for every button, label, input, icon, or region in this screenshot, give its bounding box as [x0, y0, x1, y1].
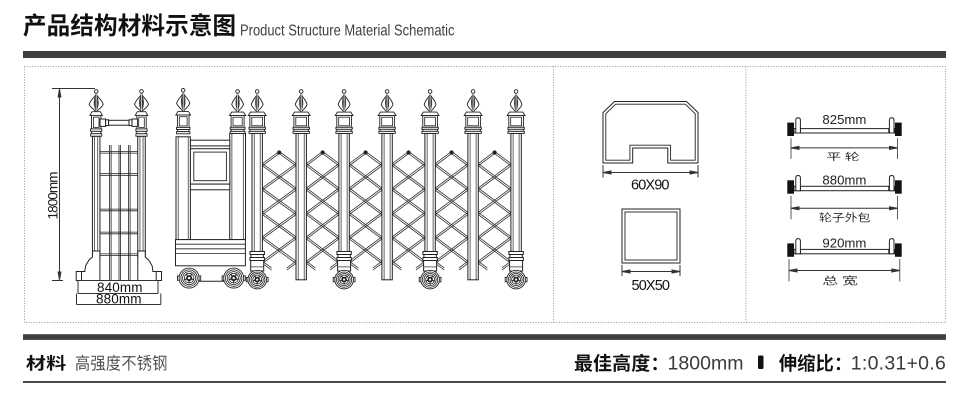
svg-text:50X50: 50X50: [632, 278, 671, 294]
svg-text:880mm: 880mm: [96, 292, 142, 307]
svg-text:1:0.31+0.6: 1:0.31+0.6: [851, 353, 946, 375]
svg-text:920mm: 920mm: [822, 236, 866, 251]
svg-text:Product Structure Material Sch: Product Structure Material Schematic: [240, 23, 455, 40]
svg-text:60X90: 60X90: [631, 178, 670, 194]
svg-text:1800mm: 1800mm: [46, 172, 61, 220]
svg-text:880mm: 880mm: [822, 172, 866, 187]
svg-text:825mm: 825mm: [822, 112, 866, 127]
svg-text:1800mm: 1800mm: [668, 353, 744, 375]
